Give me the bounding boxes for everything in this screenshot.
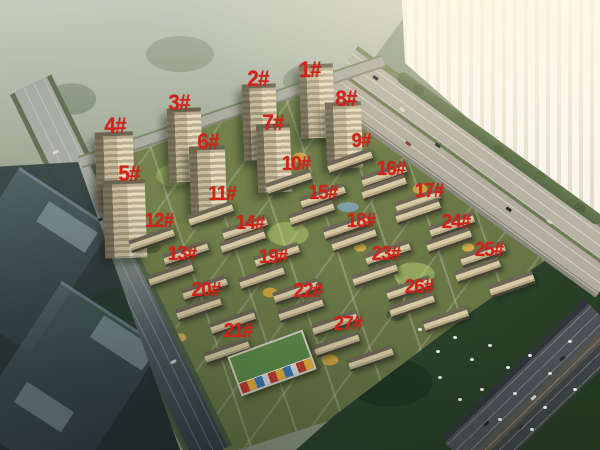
building-labels-layer: 1#2#3#4#5#6#7#8#9#10#11#12#13#14#15#16#1… [0, 0, 600, 450]
aerial-site-plan-image: 1#2#3#4#5#6#7#8#9#10#11#12#13#14#15#16#1… [0, 0, 600, 450]
building-label-22: 22# [294, 281, 323, 301]
building-label-14: 14# [236, 213, 265, 233]
building-label-16: 16# [377, 159, 406, 179]
building-label-17: 17# [415, 181, 444, 201]
building-label-10: 10# [282, 154, 311, 174]
building-label-25: 25# [475, 240, 504, 260]
building-label-24: 24# [442, 212, 471, 232]
building-label-21: 21# [224, 321, 253, 341]
building-label-9: 9# [351, 131, 370, 151]
building-label-1: 1# [299, 59, 320, 81]
building-label-27: 27# [334, 314, 363, 334]
building-label-18: 18# [347, 211, 376, 231]
building-label-26: 26# [405, 277, 434, 297]
building-label-11: 11# [208, 184, 236, 204]
building-label-13: 13# [168, 244, 197, 264]
building-label-4: 4# [104, 115, 125, 137]
building-label-2: 2# [247, 68, 268, 90]
building-label-3: 3# [168, 92, 189, 114]
building-label-12: 12# [145, 211, 174, 231]
building-label-6: 6# [197, 131, 218, 153]
building-label-23: 23# [372, 244, 401, 264]
building-label-15: 15# [309, 183, 338, 203]
building-label-8: 8# [335, 88, 356, 110]
building-label-7: 7# [262, 112, 283, 134]
building-label-20: 20# [192, 280, 221, 300]
building-label-19: 19# [259, 247, 288, 267]
building-label-5: 5# [118, 163, 139, 185]
